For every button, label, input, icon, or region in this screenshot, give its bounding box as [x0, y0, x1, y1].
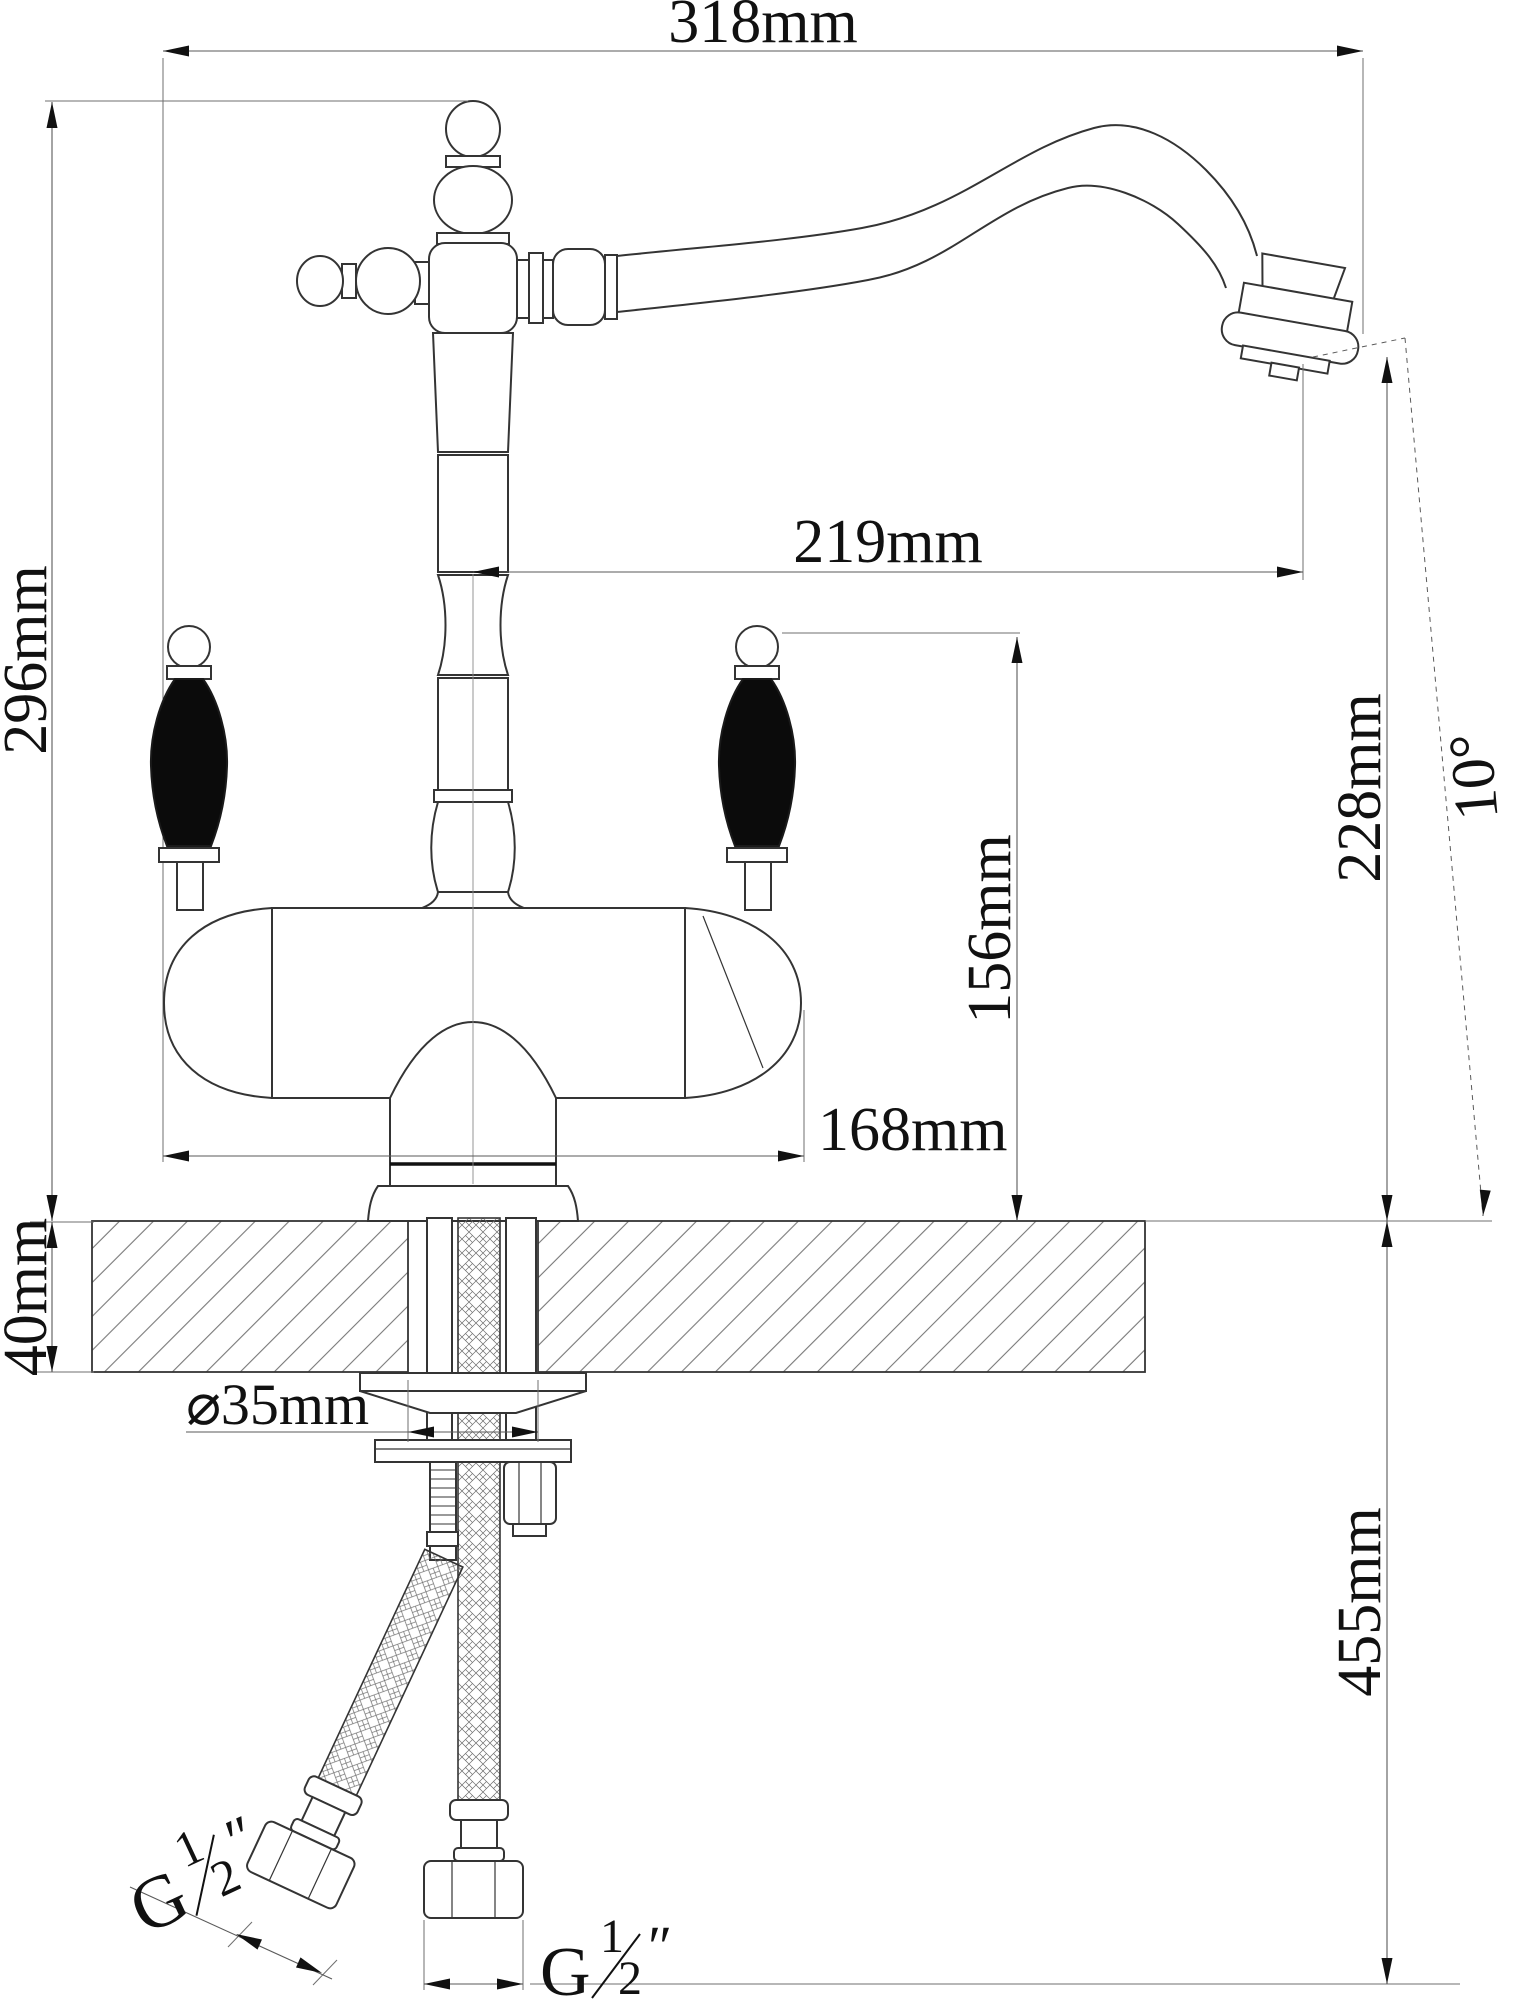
bottom-thread-denominator: 2: [618, 1952, 642, 2000]
overall-height-label: 296mm: [0, 565, 60, 754]
right-handle-ball: [736, 626, 778, 668]
right-handle-lever: [719, 679, 795, 846]
hole-diameter-label: ⌀35mm: [186, 1372, 369, 1437]
spout-tube: [617, 125, 1257, 312]
bottom-thread-unit: ″: [648, 1914, 672, 1979]
handle-height-label: 156mm: [956, 834, 1024, 1023]
countertop: [92, 1221, 1145, 1372]
counter-thickness-label: 40mm: [0, 1218, 60, 1376]
bottom-thread-label: G 1 2 ″: [540, 1910, 672, 2000]
diagonal-hose: [245, 1537, 488, 1910]
faucet-technical-drawing: 318mm 219mm 296mm 228mm 10° 156mm 168mm …: [0, 0, 1521, 2000]
faucet-artwork: [92, 101, 1372, 1918]
right-handle: [719, 626, 795, 910]
vertical-hose-fitting: [424, 1800, 523, 1918]
left-handle: [151, 626, 227, 910]
mounting-stud: [427, 1462, 458, 1560]
left-knob: [297, 248, 429, 314]
overall-width-label: 318mm: [668, 0, 857, 56]
left-handle-lever: [151, 679, 227, 846]
left-handle-ball: [168, 626, 210, 668]
spout-reach-label: 219mm: [793, 508, 982, 576]
base-flange: [368, 1186, 578, 1221]
mounting-nut: [504, 1462, 556, 1536]
below-counter-length-label: 455mm: [1326, 1507, 1394, 1696]
spout-outlet: [1215, 249, 1372, 390]
outlet-angle-label: 10°: [1436, 731, 1511, 823]
faucet-technical-drawing-page: 318mm 219mm 296mm 228mm 10° 156mm 168mm …: [0, 0, 1521, 2000]
finial: [434, 101, 512, 244]
spout-collar-ribs: [517, 249, 617, 325]
outlet-height-label: 228mm: [1326, 693, 1394, 882]
bottom-thread-letter: G: [540, 1934, 591, 2000]
supply-hose-vertical: [458, 1218, 500, 1802]
body-width-label: 168mm: [818, 1096, 1007, 1164]
cross-tee-body: [429, 243, 517, 333]
